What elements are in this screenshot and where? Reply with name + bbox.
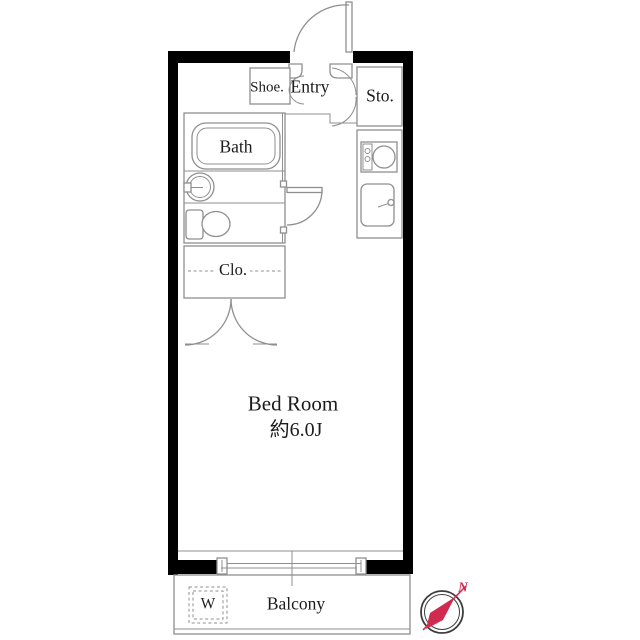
washer-label: W [201, 596, 216, 612]
shoe-cabinet-label: Shoe. [250, 81, 284, 96]
wall-right [403, 51, 413, 573]
entry-label: Entry [291, 78, 330, 96]
bath-door-swing-arc [287, 190, 322, 225]
toilet-bowl [202, 212, 230, 237]
closet-door-arc-left [185, 299, 231, 345]
wall-bottom-right [365, 560, 413, 574]
bedroom-size-label: 約6.0J [270, 420, 323, 440]
balcony-label: Balcony [267, 595, 325, 613]
kitchen-faucet [388, 200, 394, 206]
compass-north-label: N [458, 580, 468, 594]
closet-door-arc-right [231, 299, 277, 345]
bath-room [184, 113, 285, 243]
entry-door [289, 2, 352, 78]
wall-bottom-left [168, 560, 218, 574]
bath-door-jamb-top [281, 181, 287, 187]
storage-label: Sto. [366, 87, 394, 105]
bath-door-jamb-bottom [281, 227, 287, 233]
wall-left [168, 51, 178, 575]
bath-door-leaf [287, 188, 322, 193]
bath-label: Bath [219, 138, 252, 156]
genkan-step-line [285, 114, 357, 123]
entry-door-swing-arc [294, 5, 349, 52]
entry-door-leaf [346, 2, 352, 52]
toilet-tank [186, 210, 203, 239]
wall-top-left [168, 51, 290, 63]
closet-label: Clo. [216, 262, 250, 279]
compass-needle [426, 597, 455, 629]
kitchen-unit [357, 130, 402, 238]
floorplan-page: Shoe. Entry Sto. Bath Clo. Bed Room 約6.0… [0, 0, 640, 640]
corridor [281, 113, 323, 243]
bath-sink-handle [184, 183, 191, 192]
bedroom-label: Bed Room [248, 394, 338, 415]
storage-door-arc-bottom [332, 97, 356, 126]
